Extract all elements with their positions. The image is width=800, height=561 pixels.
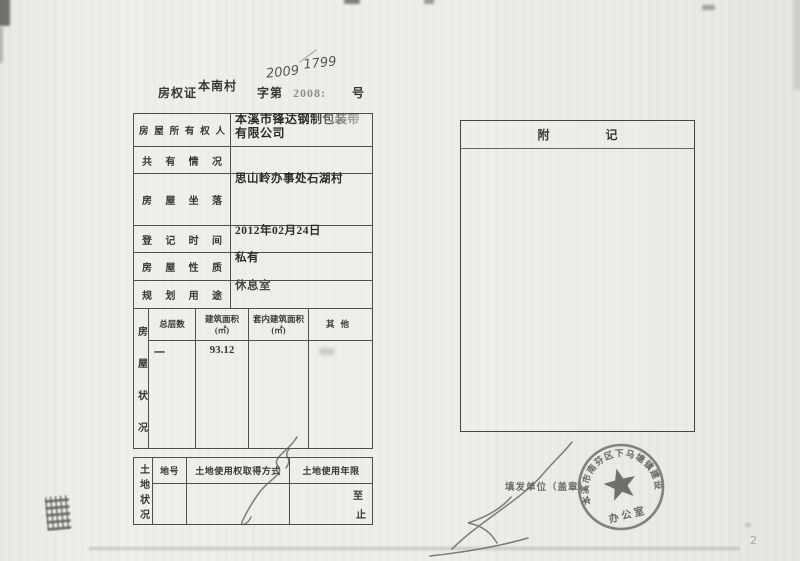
house-nature-value: 私有 — [231, 252, 372, 279]
co-ownership-value — [231, 146, 372, 172]
land-status-section: 土地状况 地号 土地使用权取得方式 土地使用年限 至 止 — [133, 457, 373, 525]
term-to-mark: 止 — [356, 506, 366, 521]
location-value: 思山岭办事处石湖村 — [231, 173, 372, 224]
land-tenure-header: 土地使用年限 — [290, 458, 372, 483]
remarks-box: 附记 — [460, 120, 695, 432]
land-number-header: 地号 — [153, 458, 187, 483]
row-label: 登记时间 — [142, 232, 222, 247]
inner-area-value — [249, 341, 309, 448]
handwritten-cert-number: 20091799 — [265, 59, 337, 81]
column-header: 套内建筑面积 (㎡) — [249, 309, 309, 340]
house-status-header-row: 总层数 建筑面积 (㎡) 套内建筑面积 (㎡) 其他 — [149, 309, 372, 341]
scan-artifact — [0, 0, 10, 26]
table-row: 共有情况 — [134, 147, 372, 174]
signature-stroke — [452, 442, 572, 549]
column-header: 总层数 — [149, 309, 196, 340]
scanned-certificate-page: 房权证本南村字第2008:号 20091799 房屋所有权人 本溪市锋达钢制包装… — [0, 0, 800, 561]
building-area-value: 93.12 — [196, 341, 249, 448]
cert-type-label: 房权证 — [158, 86, 197, 100]
hao-label: 号 — [352, 86, 365, 100]
column-header: 建筑面积 (㎡) — [196, 309, 249, 340]
official-seal: 本溪市南芬区下马塘镇建设 办公室 — [564, 430, 678, 544]
house-status-section: 房屋状况 总层数 建筑面积 (㎡) 套内建筑面积 (㎡) — [134, 309, 372, 448]
scan-artifact — [702, 5, 715, 10]
table-row: 房屋坐落 思山岭办事处石湖村 — [134, 174, 372, 226]
star-icon — [601, 465, 640, 503]
faded-mark — [319, 348, 335, 355]
land-acquisition-header: 土地使用权取得方式 — [187, 458, 290, 483]
table-row: 规划用途 休息室 — [134, 281, 372, 309]
land-number-value — [153, 484, 187, 524]
row-label: 共有情况 — [142, 153, 222, 168]
column-header: 其他 — [309, 309, 372, 340]
edge-stamp-mark — [45, 495, 72, 531]
scan-artifact — [794, 0, 800, 90]
zi-di-label: 字第 — [257, 86, 283, 100]
row-label: 房屋所有权人 — [139, 123, 225, 137]
term-from-mark: 至 — [353, 487, 363, 502]
row-label: 房屋性质 — [142, 259, 222, 274]
house-status-side-label: 房屋状况 — [134, 326, 149, 454]
scan-artifact — [0, 27, 3, 63]
house-status-data-row: 一 93.12 — [149, 341, 372, 448]
land-acquisition-value — [187, 484, 290, 524]
table-row: 房屋性质 私有 — [134, 253, 372, 281]
page-number: 2 — [750, 534, 757, 547]
land-tenure-value: 至 止 — [290, 484, 372, 524]
handwritten-serial: 1799 — [303, 54, 337, 72]
printed-cert-number: 2008: — [293, 86, 326, 100]
floors-value: 一 — [149, 341, 196, 448]
table-row: 房屋所有权人 本溪市锋达钢制包装带有限公司 — [134, 114, 372, 147]
scan-artifact — [344, 0, 360, 4]
table-row: 登记时间 2012年02月24日 — [134, 226, 372, 253]
row-label: 规划用途 — [142, 287, 222, 302]
scan-artifact — [745, 523, 751, 527]
owner-table: 房屋所有权人 本溪市锋达钢制包装带有限公司 共有情况 房屋坐落 思山岭办事处石湖… — [133, 113, 373, 449]
row-label: 房屋坐落 — [142, 192, 222, 207]
scan-artifact — [88, 547, 740, 550]
owner-value: 本溪市锋达钢制包装带有限公司 — [231, 113, 372, 145]
handwritten-year: 2009 — [265, 63, 299, 81]
remarks-title: 附记 — [461, 121, 694, 149]
scan-artifact — [424, 0, 434, 4]
other-value — [309, 341, 372, 448]
land-status-header-row: 地号 土地使用权取得方式 土地使用年限 — [153, 458, 372, 484]
registration-date-value: 2012年02月24日 — [231, 225, 372, 251]
land-status-data-row: 至 止 — [153, 484, 372, 524]
land-status-side-label: 土地状况 — [136, 464, 151, 524]
cert-region-text: 本南村 — [198, 79, 237, 93]
signature-stroke — [468, 497, 511, 543]
planned-use-value: 休息室 — [231, 280, 372, 307]
cert-number-line: 房权证本南村字第2008:号 — [158, 84, 365, 101]
